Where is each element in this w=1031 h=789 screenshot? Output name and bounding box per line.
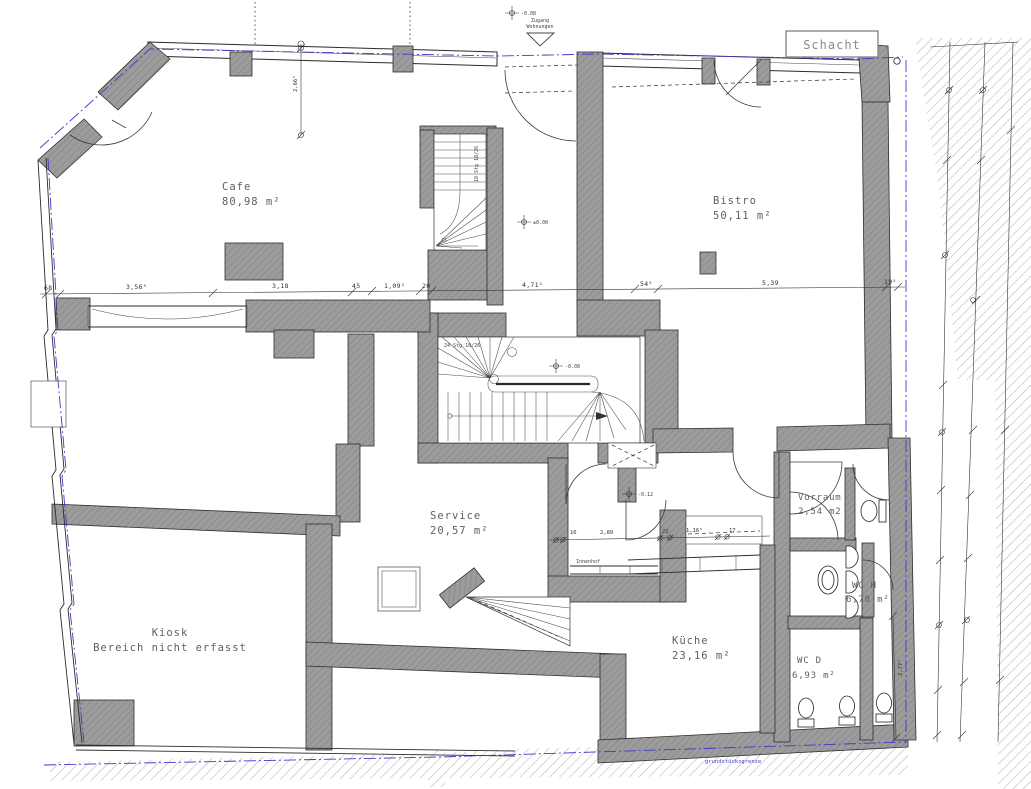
stair-small-cafe: 18 Stg 18/26: [434, 134, 486, 250]
dim-label: 54⁵: [640, 280, 653, 288]
toilet: [798, 698, 814, 727]
wall-segment: [760, 545, 775, 733]
wall-segment: [336, 444, 360, 522]
dim-label: 19⁵: [884, 278, 897, 286]
door-arc: [853, 464, 889, 500]
room-label-kueche: Küche: [672, 635, 709, 647]
wall-segment: [306, 642, 618, 678]
wall-segment: [577, 52, 603, 305]
wall-segment: [845, 468, 855, 540]
toilet: [876, 693, 892, 722]
entry-marker: Zugang Wohnungen: [526, 18, 554, 46]
dim-label: 2,77⁵: [897, 659, 904, 676]
elevation-value: -0.12: [638, 492, 653, 498]
elevation-value: -0.08: [565, 364, 580, 370]
wall-segment: [487, 128, 503, 305]
bistro-entry-opening: [712, 58, 760, 72]
room-label-kiosk: Kiosk: [152, 627, 189, 639]
wall-segment: [653, 428, 733, 453]
entry-arrow-icon: [527, 33, 554, 46]
wall-segment: [418, 313, 438, 463]
dim-label: 2,89: [600, 530, 613, 536]
room-label-cafe: Cafe: [222, 181, 251, 193]
wall-pillar: [757, 59, 770, 85]
wall-segment: [600, 654, 626, 744]
wall-segment: [246, 300, 430, 332]
floorplan-canvas: 18 Stg 18/26 24 Stg 18/26: [0, 0, 1031, 789]
door-arc: [505, 70, 576, 141]
wall-segment: [774, 452, 790, 742]
wall-pillar: [702, 58, 715, 84]
dim-label: 16: [570, 530, 577, 536]
wall-segment: [52, 504, 340, 536]
schacht-label: Schacht: [803, 38, 861, 52]
wall-pillar: [700, 252, 716, 274]
room-area-wcd: 6,93 m²: [792, 671, 836, 681]
room-area-kueche: 23,16 m²: [672, 650, 731, 662]
room-label-wch: WC H: [852, 581, 877, 591]
door-arc: [566, 464, 606, 504]
wall-pillar: [225, 243, 283, 280]
dim-label: 1,16⁵: [686, 527, 703, 534]
dim-label: 22: [662, 529, 669, 535]
wall-segment: [788, 616, 863, 629]
dim-label: 20: [422, 282, 430, 290]
dim-label: 68: [44, 284, 52, 292]
room-area-vorraum: 2,54 m2: [798, 507, 842, 517]
room-label-service: Service: [430, 510, 481, 522]
room-area-wch: 6,78 m²: [846, 595, 890, 605]
stair-main-note: 24 Stg 18/26: [444, 343, 480, 349]
elevation-value: -0.08: [521, 11, 536, 17]
dim-label: 3,18: [272, 282, 289, 290]
property-line-label: grundstücksgrenze: [705, 759, 761, 765]
elevation-value: ±0.00: [533, 220, 548, 226]
wall-segment: [274, 330, 314, 358]
wall-segment: [38, 119, 102, 178]
stair-service-triangle: [466, 597, 570, 646]
wall-segment: [777, 424, 890, 451]
wall-segment: [56, 298, 90, 330]
room-note-kiosk: Bereich nicht erfasst: [93, 642, 247, 654]
innenhof-label: Innenhof: [576, 559, 600, 565]
room-area-cafe: 80,98 m²: [222, 196, 281, 208]
dim-label: 5,39: [762, 279, 779, 287]
wall-segment: [862, 543, 874, 617]
dim-label: 3,56⁵: [126, 283, 147, 291]
dim-label: 2,66⁵: [292, 75, 299, 92]
wall-pillar: [230, 52, 252, 76]
room-area-bistro: 50,11 m²: [713, 210, 772, 222]
wall-segment: [98, 42, 170, 110]
display-case: [31, 381, 66, 427]
dim-label: 17: [729, 528, 736, 534]
toilet: [861, 500, 886, 522]
dim-label: 1,09⁵: [384, 282, 405, 290]
toilet: [839, 696, 855, 725]
display-window: [88, 306, 247, 327]
service-counter: [378, 567, 420, 611]
wall-segment: [74, 700, 134, 746]
room-label-wcd: WC D: [797, 656, 822, 666]
wall-segment: [418, 443, 568, 463]
survey-point: [894, 58, 900, 64]
wall-segment: [860, 618, 873, 740]
wall-segment: [548, 458, 568, 578]
stair-small-note: 18 Stg 18/26: [474, 146, 480, 182]
wall-segment: [660, 510, 686, 602]
wall-segment: [888, 438, 916, 740]
left-facade: [31, 158, 82, 744]
wall-segment: [306, 524, 332, 750]
room-label-vorraum: Vorraum: [798, 493, 842, 503]
floorplan-drawing: 18 Stg 18/26 24 Stg 18/26: [0, 0, 1031, 789]
room-area-service: 20,57 m²: [430, 525, 489, 537]
dim-label: 45: [352, 282, 360, 290]
schacht-box: Schacht: [786, 31, 878, 57]
zugang-label-2: Wohnungen: [526, 24, 553, 30]
elevation-marker: ±0.00: [517, 215, 548, 229]
door-arc: [733, 452, 779, 498]
wall-segment: [428, 250, 494, 300]
wall-segment: [862, 102, 892, 438]
dim-label: 4,71⁵: [522, 281, 543, 289]
wall-segment: [348, 334, 374, 446]
room-label-bistro: Bistro: [713, 195, 757, 207]
wall-segment: [420, 130, 434, 208]
wall-pillar: [393, 46, 413, 72]
